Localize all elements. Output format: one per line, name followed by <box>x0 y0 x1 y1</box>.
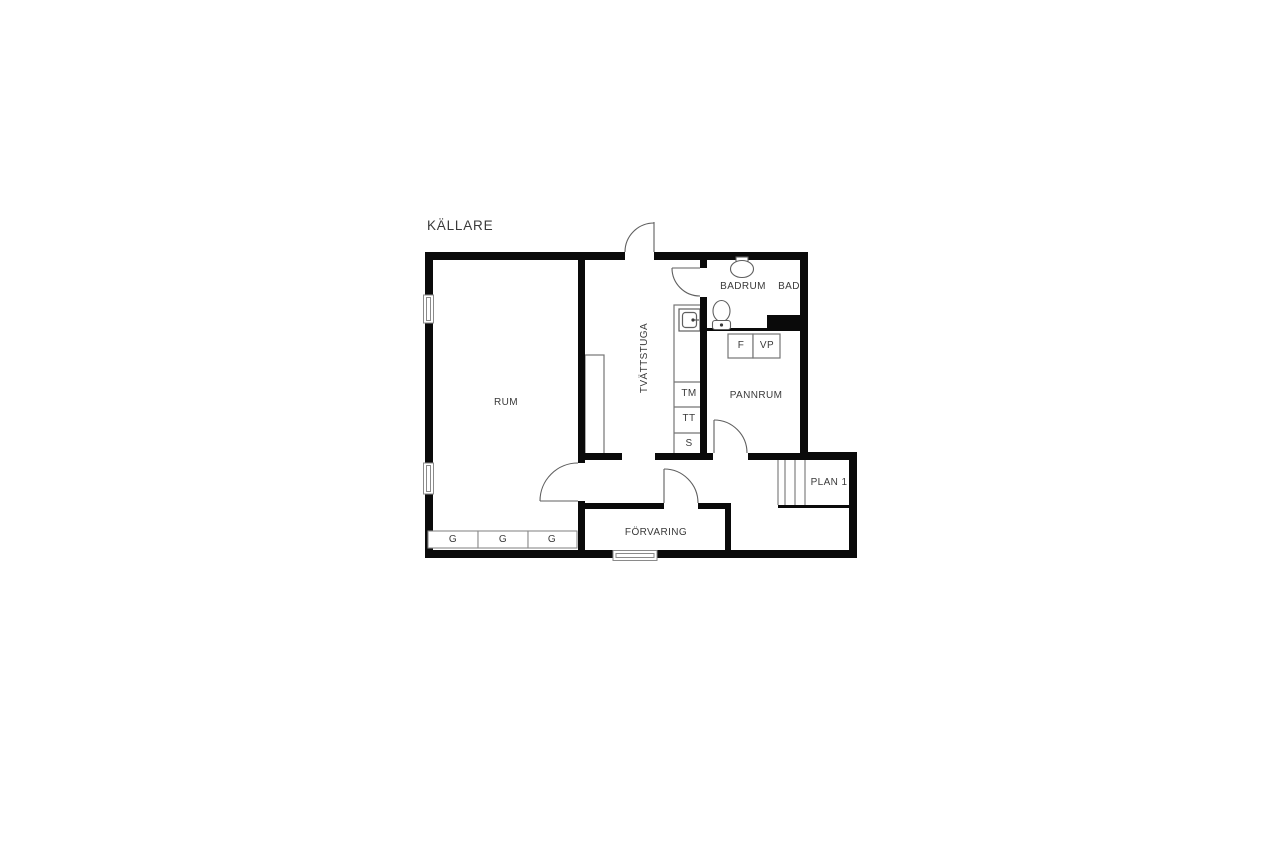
wall-tvattstuga-south-left <box>578 453 622 460</box>
toilet-icon <box>713 301 731 330</box>
closet-label-g1: G <box>449 535 457 545</box>
plan-title: KÄLLARE <box>427 219 493 233</box>
room-label-tvattstuga: TVÄTTSTUGA <box>640 323 650 393</box>
door-swing-icon-pannrum <box>714 420 747 453</box>
wall-bad-south-chunk <box>767 315 808 331</box>
wall-forvaring-east <box>725 503 731 558</box>
door-swing-icon-forvaring <box>664 469 698 503</box>
floorplan-drawing <box>0 0 1280 853</box>
wall-extension-top <box>800 452 857 460</box>
appliance-label-tt: TT <box>682 414 695 424</box>
floorplan-page: KÄLLARE RUM TVÄTTSTUGA BADRUM BAD PANNRU… <box>0 0 1280 853</box>
window-icon-left-upper <box>424 295 434 323</box>
stairs-icon <box>778 460 805 505</box>
laundry-sink-icon <box>679 309 700 331</box>
window-icon-bottom <box>613 551 657 561</box>
wall-rum-east-lower <box>578 501 585 558</box>
chimney-shaft <box>585 355 604 456</box>
wall-badrum-west-stub <box>700 252 707 268</box>
room-label-plan1: PLAN 1 <box>811 478 848 488</box>
wall-top-right <box>654 252 808 260</box>
room-label-pannrum: PANNRUM <box>730 391 783 401</box>
washbasin-icon <box>731 257 754 278</box>
wall-tvattstuga-east <box>700 297 707 460</box>
wall-forvaring-north-left <box>578 503 664 509</box>
door-swing-icon-rum <box>540 463 578 501</box>
room-label-rum: RUM <box>494 398 518 408</box>
room-label-bad: BAD <box>778 282 800 292</box>
room-label-forvaring: FÖRVARING <box>625 528 687 538</box>
appliance-label-f: F <box>738 341 745 351</box>
room-label-badrum: BADRUM <box>720 282 766 292</box>
closet-label-g2: G <box>499 535 507 545</box>
appliance-label-vp: VP <box>760 341 774 351</box>
wall-rum-east-upper <box>578 252 585 463</box>
door-swing-icon-entrance <box>625 222 654 252</box>
wall-top-left <box>425 252 625 260</box>
windows <box>424 295 658 561</box>
window-icon-left-lower <box>424 463 434 494</box>
stair-landing-edge <box>778 505 849 508</box>
closet-label-g3: G <box>548 535 556 545</box>
wall-pannrum-south <box>748 453 803 460</box>
walls <box>425 252 857 558</box>
appliance-label-tm: TM <box>681 389 696 399</box>
appliance-label-s: S <box>685 439 692 449</box>
wall-extension-right <box>849 452 857 558</box>
wall-right-upper <box>800 252 808 460</box>
door-swing-icon-badrum <box>672 268 700 296</box>
